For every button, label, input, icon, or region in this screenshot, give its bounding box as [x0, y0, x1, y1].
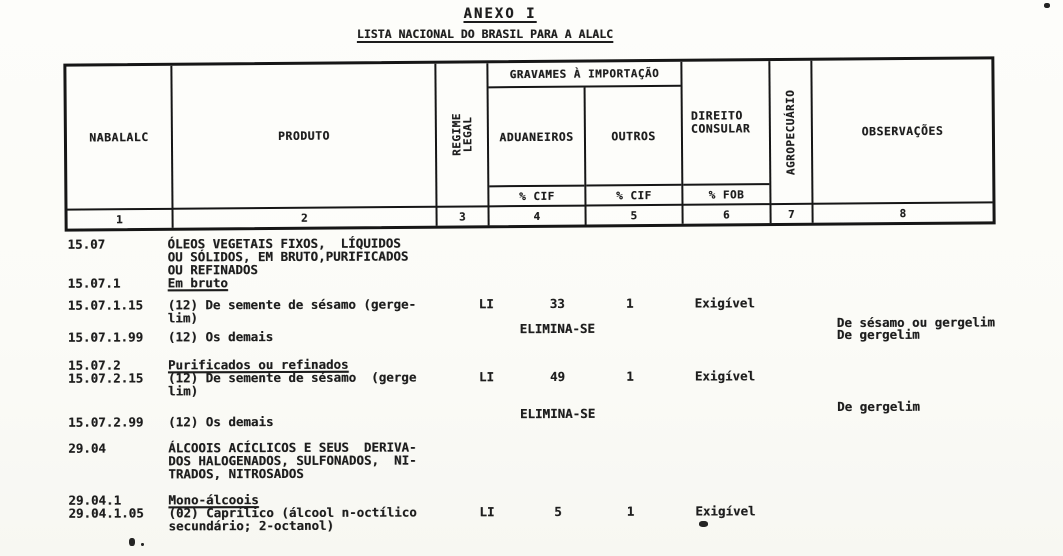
row-regime: LI — [458, 297, 515, 310]
table-header: NABALALC 1 PRODUTO 2 REGIME LEGAL 3 GRAV… — [63, 56, 995, 231]
row-code: 15.07.1.99 — [68, 330, 168, 343]
row-code: 15.07.1.15 — [68, 298, 168, 311]
regime-label-line2: LEGAL — [462, 113, 473, 156]
product-line: secundário; 2-octanol) — [168, 518, 458, 532]
col-unit: % CIF — [586, 184, 681, 205]
col-number: 4 — [489, 205, 584, 226]
row-product: (12) De semente de sésamo (gerge- lim) — [168, 297, 458, 324]
row-observacoes: De sésamo ou gergelim — [837, 315, 1063, 329]
row-observacoes — [837, 368, 1063, 369]
table-row: 15.07.2.99 (12) Os demais ELIMINA-SE De … — [68, 412, 1063, 428]
header-group-gravames: GRAVAMES À IMPORTAÇÃO ADUANEIROS % CIF 4… — [488, 62, 683, 226]
scan-artifact — [141, 543, 144, 546]
row-product: (02) Caprílico (álcool n-octílico secund… — [168, 505, 458, 532]
page-title: ANEXO I — [440, 6, 560, 22]
col-number: 8 — [813, 201, 992, 222]
row-product: ÓLEOS VEGETAIS FIXOS, LÍQUIDOS OU SÓLIDO… — [167, 236, 457, 276]
row-code: 29.04 — [68, 441, 168, 454]
header-col-produto: PRODUTO 2 — [172, 64, 437, 228]
product-line: (12) De semente de sésamo (gerge — [168, 370, 458, 384]
consular-label-line2: CONSULAR — [691, 122, 750, 135]
row-code: 15.07.1 — [68, 276, 168, 289]
header-col-direito-consular: DIREITO CONSULAR % FOB 6 — [682, 61, 771, 224]
header-col-outros: OUTROS % CIF 5 — [586, 87, 682, 225]
col-label: OUTROS — [586, 87, 682, 185]
header-col-regime-legal: REGIME LEGAL 3 — [436, 63, 489, 225]
table-row: 15.07 ÓLEOS VEGETAIS FIXOS, LÍQUIDOS OU … — [67, 234, 1062, 276]
row-observacoes — [837, 503, 1063, 504]
row-product: (12) Os demais — [168, 414, 458, 428]
col-unit: % CIF — [489, 185, 584, 206]
scan-artifact — [129, 538, 135, 546]
row-aduaneiros: 33 — [515, 297, 600, 310]
col-number: 1 — [67, 208, 171, 229]
header-col-aduaneiros: ADUANEIROS % CIF 4 — [489, 88, 587, 226]
row-product: Em bruto — [168, 275, 458, 289]
row-product: (12) De semente de sésamo (gerge lim) — [168, 370, 458, 397]
row-code: 15.07.2.15 — [68, 371, 168, 384]
scan-artifact — [699, 521, 708, 527]
table-row: 29.04.1.05 (02) Caprílico (álcool n-octí… — [68, 503, 1063, 532]
row-code: 15.07 — [67, 237, 167, 250]
row-outros: 1 — [600, 297, 660, 310]
row-consular: Exigível — [660, 369, 790, 382]
col-number: 5 — [586, 204, 681, 225]
col-label: DIREITO CONSULAR — [682, 61, 769, 184]
row-regime: LI — [458, 505, 515, 518]
col-number: 3 — [437, 205, 487, 225]
scan-artifact — [1044, 3, 1050, 8]
col-number: 2 — [173, 206, 435, 228]
row-product: ÁLCOOIS ACÍCLICOS E SEUS DERIVA- DOS HAL… — [168, 440, 458, 480]
row-code: 15.07.2.99 — [68, 415, 168, 428]
product-line: lim) — [168, 310, 458, 324]
page-subtitle: LISTA NACIONAL DO BRASIL PARA A ALALC — [355, 27, 615, 41]
scanned-document-page: ANEXO I LISTA NACIONAL DO BRASIL PARA A … — [0, 0, 1063, 556]
product-line: (12) De semente de sésamo (gerge- — [168, 297, 458, 311]
col-unit: % FOB — [683, 183, 769, 204]
col-label: ADUANEIROS — [489, 88, 585, 186]
table-row: 29.04 ÁLCOOIS ACÍCLICOS E SEUS DERIVA- D… — [68, 438, 1063, 480]
row-regime: LI — [458, 370, 515, 383]
col-label-vertical: AGROPECUÁRIO — [770, 61, 811, 203]
table-row: 15.07.2.15 (12) De semente de sésamo (ge… — [68, 368, 1063, 397]
row-aduaneiros: 5 — [515, 505, 600, 518]
row-product: (12) Os demais — [168, 329, 458, 343]
row-aduaneiros: ELIMINA-SE — [515, 322, 600, 335]
row-consular: Exigível — [660, 296, 790, 309]
row-code: 29.04.1.05 — [68, 506, 168, 519]
col-label: NABALALC — [66, 66, 171, 209]
col-number: 7 — [771, 203, 811, 223]
product-line: TRADOS, NITROSADOS — [168, 466, 458, 480]
product-line: Em bruto — [168, 275, 458, 289]
product-line: (12) Os demais — [168, 414, 458, 428]
row-outros: 1 — [600, 505, 660, 518]
col-label: OBSERVAÇÕES — [812, 59, 992, 202]
product-line: lim) — [168, 383, 458, 397]
agropecuario-label: AGROPECUÁRIO — [785, 89, 797, 175]
product-line: (12) Os demais — [168, 329, 458, 343]
table-body: 15.07 ÓLEOS VEGETAIS FIXOS, LÍQUIDOS OU … — [67, 234, 1063, 532]
gravames-label: GRAVAMES À IMPORTAÇÃO — [488, 62, 680, 89]
col-number: 6 — [683, 203, 769, 224]
row-outros: 1 — [600, 370, 660, 383]
header-col-nabalalc: NABALALC 1 — [66, 66, 173, 229]
row-consular: Exigível — [660, 504, 790, 517]
row-observacoes: De gergelim — [837, 399, 1063, 413]
row-aduaneiros: ELIMINA-SE — [515, 407, 600, 420]
col-label-vertical: REGIME LEGAL — [436, 63, 487, 205]
header-col-observacoes: OBSERVAÇÕES 8 — [812, 59, 992, 222]
table-row: 15.07.1 Em bruto — [68, 273, 1063, 289]
header-col-agropecuario: AGROPECUÁRIO 7 — [770, 61, 813, 223]
col-label: PRODUTO — [172, 64, 435, 208]
row-aduaneiros: 49 — [515, 370, 600, 383]
